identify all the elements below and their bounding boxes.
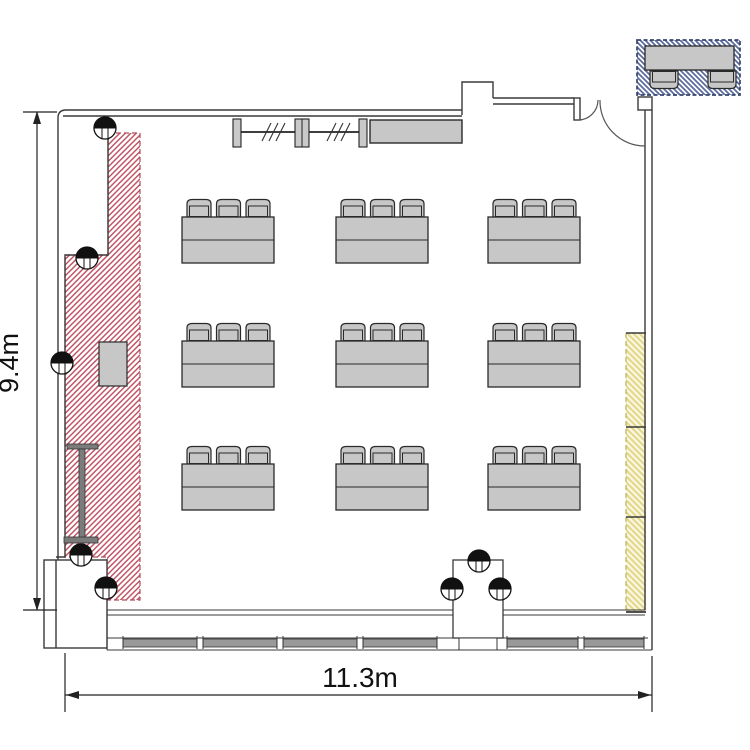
partition-post [233, 119, 241, 147]
chair [371, 200, 395, 218]
table-group [182, 447, 274, 511]
chair [217, 324, 241, 342]
door-swing [578, 100, 645, 146]
chair [493, 447, 517, 465]
chair [400, 200, 424, 218]
chair [341, 324, 365, 342]
table-group [336, 324, 428, 388]
table-group [336, 200, 428, 264]
side-cabinet [99, 342, 127, 386]
column-symbol [94, 117, 116, 139]
chair [523, 200, 547, 218]
chair [523, 324, 547, 342]
floor-plan: 9.4m 11.3m [0, 0, 750, 750]
table-group [182, 324, 274, 388]
chair [246, 200, 270, 218]
chair [400, 324, 424, 342]
chair [493, 200, 517, 218]
column-symbol [70, 544, 92, 566]
chair [650, 71, 678, 89]
table-group [488, 200, 580, 264]
height-dimension-label: 9.4m [0, 333, 24, 393]
chair [246, 324, 270, 342]
chair [187, 447, 211, 465]
right-wall-strip [626, 333, 646, 612]
column-symbol [76, 247, 98, 269]
chair [217, 447, 241, 465]
top-cabinet [370, 120, 462, 143]
chair [187, 200, 211, 218]
chair [246, 447, 270, 465]
window-segment [363, 639, 437, 647]
window-segment [203, 639, 277, 647]
chair [341, 200, 365, 218]
window-segment [123, 639, 197, 647]
column-symbol [468, 550, 490, 572]
width-dimension-label: 11.3m [322, 662, 398, 693]
chair [708, 71, 736, 89]
chair [523, 447, 547, 465]
chair [493, 324, 517, 342]
partition-post [359, 119, 367, 147]
chair [552, 447, 576, 465]
table-group [182, 200, 274, 264]
column-symbol [441, 578, 463, 600]
window-segment [584, 639, 644, 647]
window-segment [283, 639, 357, 647]
chair [371, 447, 395, 465]
tables-layer [182, 200, 580, 511]
chair [552, 324, 576, 342]
outside-table-unit [637, 40, 740, 95]
chair [341, 447, 365, 465]
chair [371, 324, 395, 342]
window-segment [507, 639, 578, 647]
bottom-duct [453, 560, 503, 650]
outside-table [645, 46, 734, 70]
partition-track [233, 119, 367, 147]
chair [400, 447, 424, 465]
floor-plan-svg: 9.4m 11.3m [0, 0, 750, 750]
column-symbol [51, 352, 73, 374]
chair [552, 200, 576, 218]
table-group [488, 447, 580, 511]
chair [187, 324, 211, 342]
table-group [336, 447, 428, 511]
column-symbol [489, 578, 511, 600]
table-group [488, 324, 580, 388]
chair [217, 200, 241, 218]
column-symbol [95, 577, 117, 599]
